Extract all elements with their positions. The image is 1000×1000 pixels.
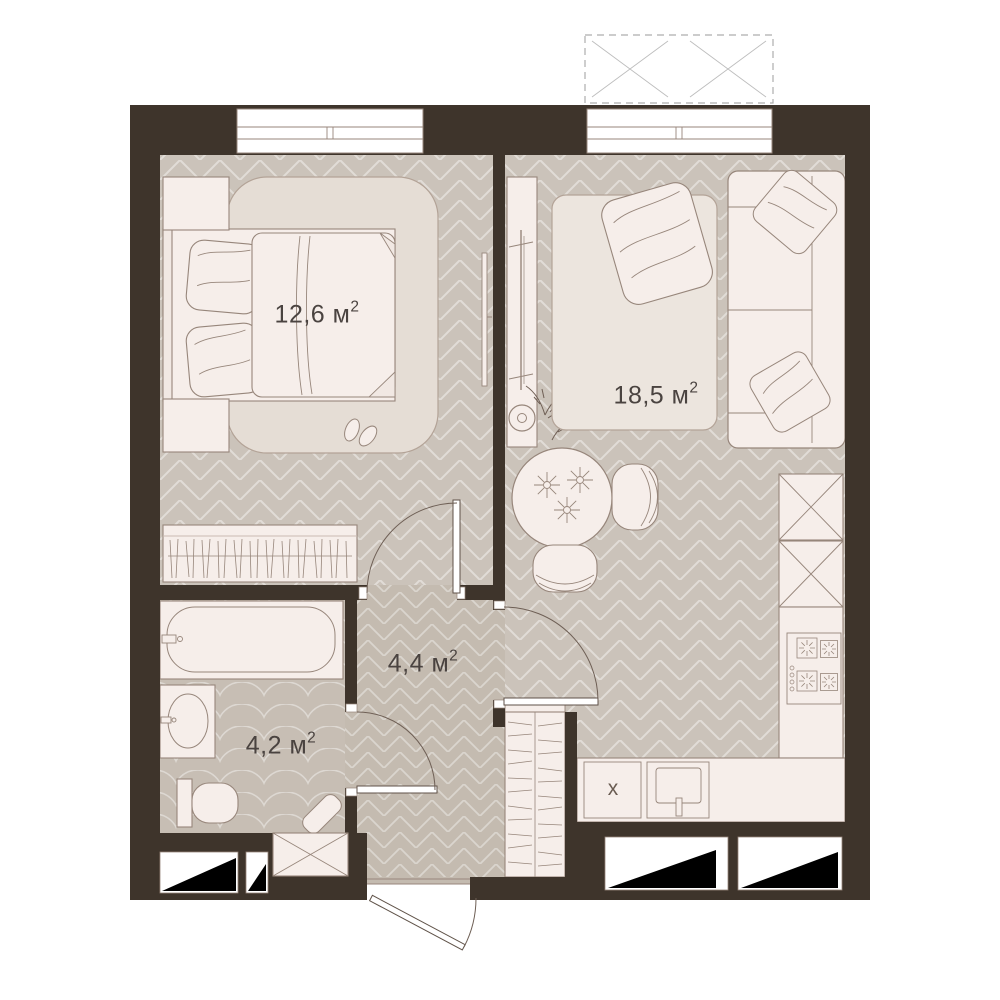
hallway-area-value: 4,4 м <box>388 650 449 678</box>
window-living <box>587 109 772 153</box>
dining-table <box>512 448 612 548</box>
wall-closet-side <box>565 712 577 877</box>
living-room-area-value: 18,5 м <box>614 382 690 410</box>
hallway-area-label: 4,4 м2 <box>388 649 459 678</box>
toilet <box>177 779 238 827</box>
toilet-bowl <box>192 783 238 823</box>
washing-machine <box>273 833 348 876</box>
bathroom-sink <box>160 685 215 758</box>
floor-plan-drawing <box>0 0 1000 1000</box>
chair-south <box>533 545 597 592</box>
toilet-tank <box>177 779 192 827</box>
wall-left <box>130 105 160 900</box>
pillow <box>185 239 263 315</box>
entry-closet <box>505 700 565 877</box>
bedroom-area-label: 12,6 м2 <box>275 300 360 329</box>
vent-bath-1 <box>160 852 238 893</box>
wall-right <box>845 105 870 900</box>
tall-cabinet-1 <box>779 474 843 540</box>
sink-faucet <box>161 717 171 723</box>
hallway-floor <box>345 585 505 884</box>
nightstand-top <box>163 177 229 230</box>
window-bedroom <box>237 109 423 153</box>
living-room-area-label: 18,5 м2 <box>614 381 699 410</box>
kitchen-appliance-marker: х <box>608 777 619 801</box>
floor-lamp <box>509 405 535 431</box>
wall-bath-hall <box>345 600 357 712</box>
faucet <box>676 798 682 816</box>
vent-bath-2 <box>246 852 268 893</box>
balcony <box>585 35 773 103</box>
bathroom-area-value: 4,2 м <box>246 732 307 760</box>
headboard <box>163 229 172 401</box>
nightstand-bottom <box>163 399 229 452</box>
wall-bedroom-living <box>493 155 505 610</box>
floor-plan: 12,6 м2 18,5 м2 4,4 м2 4,2 м2 х <box>0 0 1000 1000</box>
bedroom-area-value: 12,6 м <box>275 301 351 329</box>
kitchen-counter-right <box>779 607 843 758</box>
pillow <box>185 322 263 398</box>
bathroom-area-label: 4,2 м2 <box>246 731 317 760</box>
wall-bottom-mid <box>470 877 577 900</box>
sofa <box>728 166 845 448</box>
vent-kitchen-2 <box>738 837 842 890</box>
bathtub <box>160 601 343 679</box>
vent-kitchen-1 <box>605 837 728 890</box>
chair-east <box>612 464 658 530</box>
tall-cabinet-2 <box>779 541 843 607</box>
wall-bedroom-bottom <box>160 585 367 600</box>
tub-faucet <box>162 635 176 643</box>
wardrobe <box>163 525 357 582</box>
door-entrance <box>367 879 476 950</box>
